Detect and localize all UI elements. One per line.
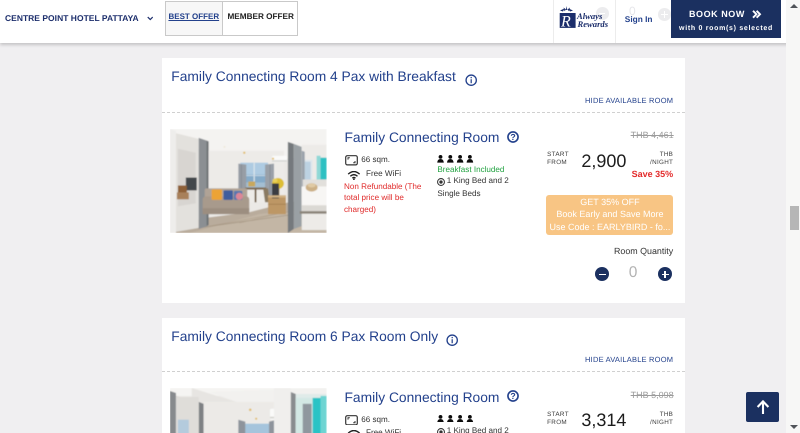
svg-text:R: R [560,13,571,29]
svg-text:Rewards: Rewards [577,19,609,29]
